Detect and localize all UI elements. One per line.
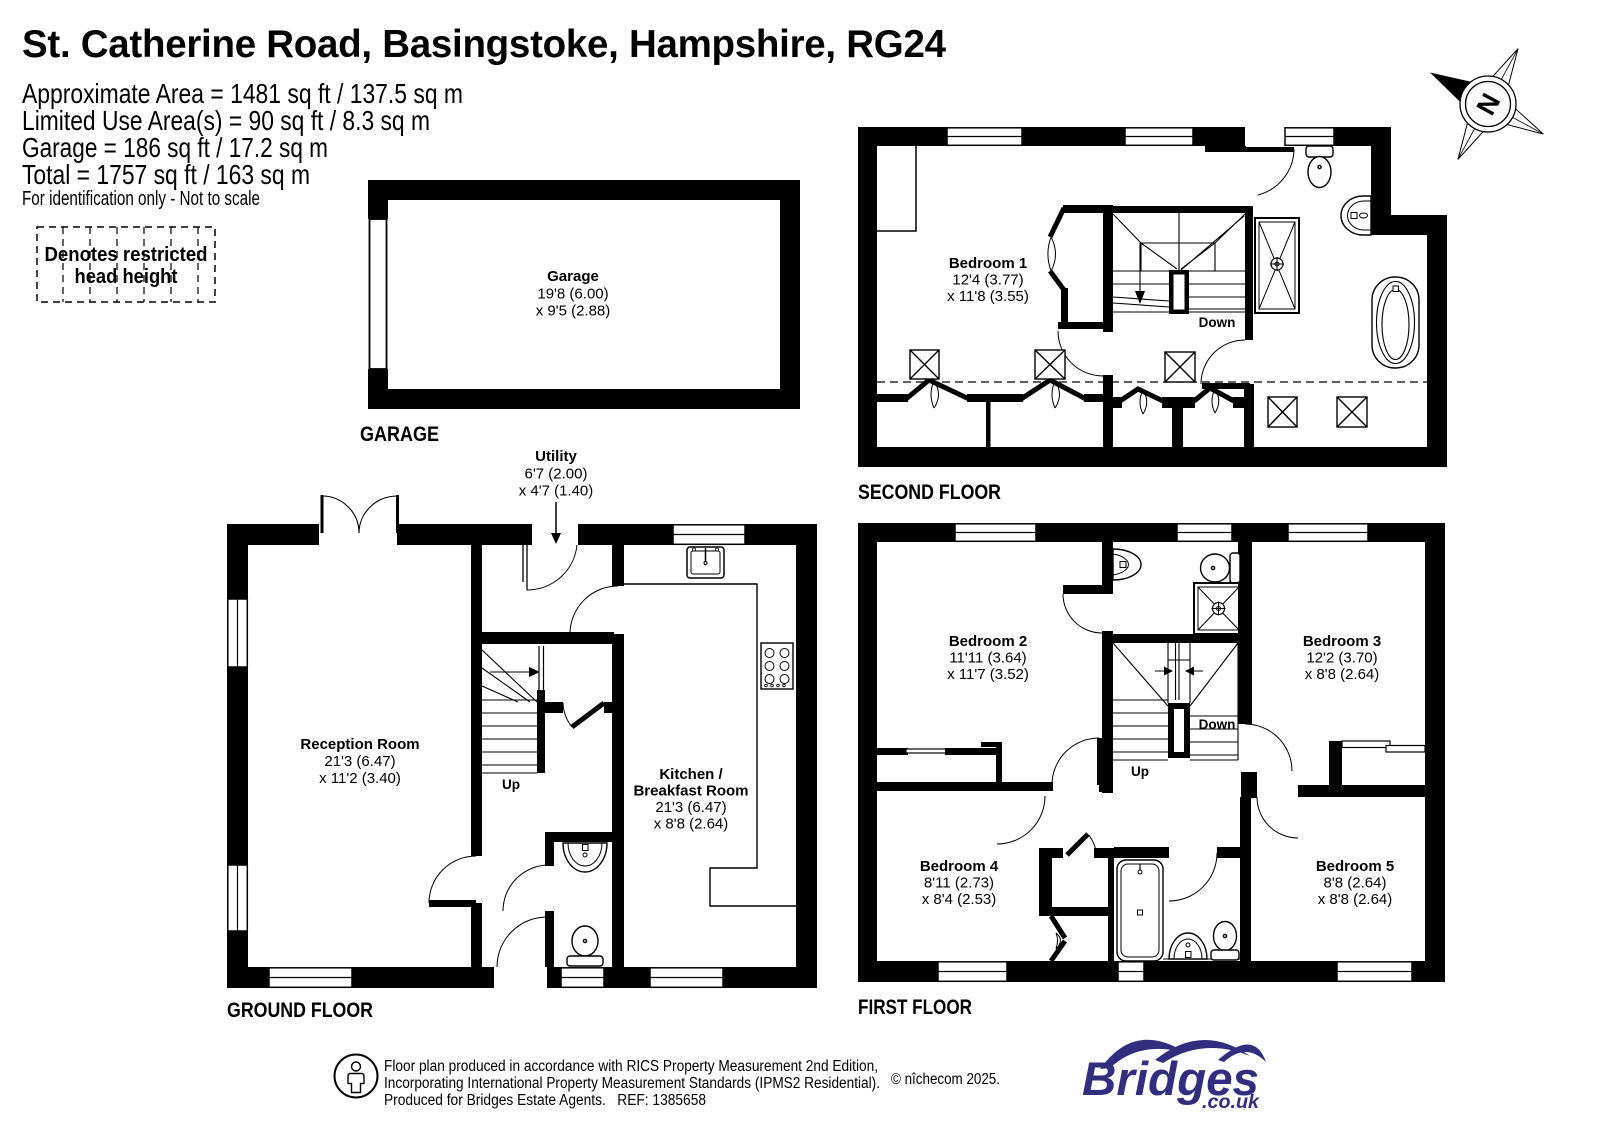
svg-text:x 9'5 (2.88): x 9'5 (2.88) xyxy=(536,303,611,320)
svg-text:GARAGE: GARAGE xyxy=(360,423,439,446)
svg-text:x 4'7 (1.40): x 4'7 (1.40) xyxy=(519,483,594,500)
svg-text:Down: Down xyxy=(1199,717,1236,732)
svg-text:Bedroom 3: Bedroom 3 xyxy=(1303,633,1381,650)
svg-text:Down: Down xyxy=(1199,315,1236,330)
svg-text:11'11 (3.64): 11'11 (3.64) xyxy=(949,650,1026,667)
svg-text:x 11'2 (3.40): x 11'2 (3.40) xyxy=(319,770,401,787)
svg-text:Floor plan produced in accorda: Floor plan produced in accordance with R… xyxy=(384,1058,878,1075)
svg-text:Breakfast Room: Breakfast Room xyxy=(633,783,748,800)
svg-text:21'3 (6.47): 21'3 (6.47) xyxy=(655,799,726,816)
svg-text:Bedroom 5: Bedroom 5 xyxy=(1316,858,1394,875)
svg-text:head height: head height xyxy=(75,266,178,288)
svg-text:21'3 (6.47): 21'3 (6.47) xyxy=(324,753,395,770)
svg-text:x 8'4 (2.53): x 8'4 (2.53) xyxy=(922,891,997,908)
svg-text:Reception Room: Reception Room xyxy=(300,736,419,753)
svg-text:St. Catherine Road, Basingstok: St. Catherine Road, Basingstoke, Hampshi… xyxy=(22,23,947,66)
svg-text:Kitchen /: Kitchen / xyxy=(659,766,723,783)
svg-text:Total = 1757 sq ft / 163 sq m: Total = 1757 sq ft / 163 sq m xyxy=(22,159,310,190)
svg-text:Up: Up xyxy=(1131,764,1149,779)
svg-text:12'4 (3.77): 12'4 (3.77) xyxy=(952,272,1023,289)
svg-text:19'8 (6.00): 19'8 (6.00) xyxy=(537,286,608,303)
svg-text:Bedroom 2: Bedroom 2 xyxy=(949,633,1027,650)
svg-text:Incorporating International Pr: Incorporating International Property Mea… xyxy=(384,1075,880,1092)
svg-text:6'7 (2.00): 6'7 (2.00) xyxy=(525,466,588,483)
svg-text:x 11'8 (3.55): x 11'8 (3.55) xyxy=(947,288,1029,305)
svg-text:x 8'8 (2.64): x 8'8 (2.64) xyxy=(1318,891,1393,908)
svg-text:Up: Up xyxy=(502,777,520,792)
svg-text:SECOND FLOOR: SECOND FLOOR xyxy=(858,481,1001,504)
svg-text:x 11'7 (3.52): x 11'7 (3.52) xyxy=(947,666,1029,683)
svg-text:x 8'8 (2.64): x 8'8 (2.64) xyxy=(654,816,729,833)
svg-text:For identification only - Not: For identification only - Not to scale xyxy=(22,188,260,210)
svg-text:Bedroom 4: Bedroom 4 xyxy=(920,858,999,875)
svg-text:8'8 (2.64): 8'8 (2.64) xyxy=(1324,875,1387,892)
svg-text:Bedroom 1: Bedroom 1 xyxy=(949,255,1027,272)
svg-text:Produced for Bridges Estate Ag: Produced for Bridges Estate Agents. REF:… xyxy=(384,1092,706,1109)
svg-text:© nîchecom 2025.: © nîchecom 2025. xyxy=(891,1071,1000,1088)
svg-text:12'2 (3.70): 12'2 (3.70) xyxy=(1306,650,1377,667)
svg-text:Garage: Garage xyxy=(547,268,599,285)
svg-text:Denotes restricted: Denotes restricted xyxy=(45,244,208,266)
svg-text:Utility: Utility xyxy=(535,448,577,465)
svg-text:FIRST FLOOR: FIRST FLOOR xyxy=(858,996,972,1019)
svg-text:GROUND FLOOR: GROUND FLOOR xyxy=(227,999,373,1022)
svg-text:x 8'8 (2.64): x 8'8 (2.64) xyxy=(1305,666,1380,683)
svg-text:.co.uk: .co.uk xyxy=(1202,1091,1260,1113)
svg-text:8'11 (2.73): 8'11 (2.73) xyxy=(924,875,994,892)
